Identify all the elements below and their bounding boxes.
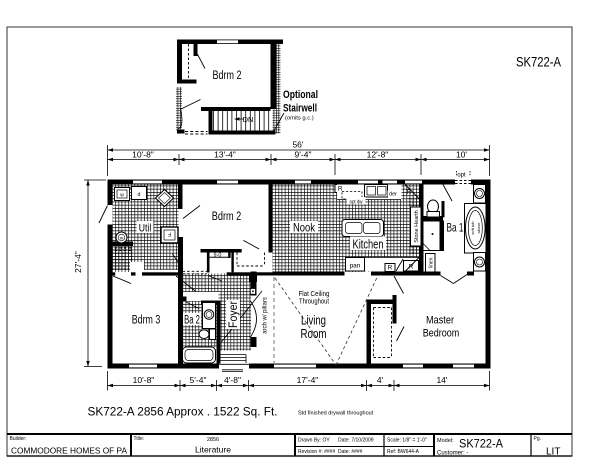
svg-text:Bdrm 2: Bdrm 2 [212,209,242,223]
svg-text:10'-8": 10'-8" [133,375,155,385]
svg-text:R: R [338,186,343,193]
svg-text:Literature: Literature [195,445,231,455]
svg-text:Ba 1: Ba 1 [447,221,464,235]
svg-text:Bdrm 3: Bdrm 3 [132,313,161,327]
svg-text:Nook: Nook [293,221,316,235]
svg-text:Model:: Model: [437,438,454,444]
svg-text:2856: 2856 [207,437,219,443]
svg-text:Stone Hearth: Stone Hearth [414,210,420,242]
svg-text:Revision #: ####: Revision #: #### [298,449,335,455]
svg-text:pan: pan [350,263,361,270]
svg-text:17'-4": 17'-4" [297,375,319,385]
svg-text:soft tub: soft tub [470,221,475,235]
svg-text:10': 10' [456,150,467,160]
svg-text:14': 14' [436,375,447,385]
svg-text:Pg.: Pg. [534,436,542,442]
svg-text:SK722-A: SK722-A [516,55,562,70]
svg-text:Kitchen: Kitchen [353,238,384,252]
svg-text:linen: linen [428,257,434,268]
svg-text:5'-4": 5'-4" [190,375,207,385]
svg-text:Bdrm 2: Bdrm 2 [213,68,242,82]
svg-text:opt: opt [457,173,466,179]
svg-text:Builder:: Builder: [10,436,27,442]
svg-text:SK722-A: SK722-A [459,437,503,451]
svg-text:LIT: LIT [546,447,560,458]
svg-text:56': 56' [292,140,303,150]
svg-text:Optional: Optional [283,89,318,101]
svg-text:Foyer: Foyer [226,301,240,328]
svg-text:Date: ####: Date: #### [338,449,363,455]
svg-text:d: d [138,192,141,198]
svg-text:w: w [120,193,124,199]
svg-text:Ref: BW644-A: Ref: BW644-A [387,449,420,455]
svg-text:13'-4": 13'-4" [214,150,236,160]
svg-text:SK722-A 2856 Approx . 1522 Sq: SK722-A 2856 Approx . 1522 Sq. Ft. [88,405,278,419]
svg-text:Room: Room [301,327,327,341]
svg-text:Ba 2: Ba 2 [184,315,200,327]
svg-text:Drawn By: OY: Drawn By: OY [298,438,330,444]
svg-text:27'-4": 27'-4" [73,251,83,273]
svg-text:9'-4": 9'-4" [295,150,312,160]
svg-text:10'-8": 10'-8" [132,150,154,160]
svg-text:(omits g.c.): (omits g.c.) [285,116,314,122]
svg-text:Customer: -: Customer: - [437,451,468,457]
svg-text:Std finished drywall throughou: Std finished drywall throughout [298,411,374,417]
svg-text:DN: DN [243,115,254,124]
svg-text:R: R [407,189,412,196]
svg-text:Title:: Title: [134,436,145,442]
svg-text:Master: Master [426,315,454,327]
svg-text:12'-8": 12'-8" [367,150,389,160]
svg-text:Throughout: Throughout [299,299,329,306]
svg-text:arch w/ pillars: arch w/ pillars [263,297,269,334]
svg-text:R: R [388,265,393,272]
svg-text:9-0: 9-0 [214,253,222,259]
svg-text:der: der [389,192,397,198]
svg-text:4'-8": 4'-8" [224,375,241,385]
svg-text:Util: Util [139,223,152,235]
svg-text:Scale: 1/8" = 1'-0": Scale: 1/8" = 1'-0" [387,438,427,444]
svg-text:Living: Living [301,314,326,328]
svg-text:COMMODORE HOMES OF PA: COMMODORE HOMES OF PA [11,446,127,456]
svg-text:Bedroom: Bedroom [423,328,460,340]
svg-text:Date: 7/10/2009: Date: 7/10/2009 [338,438,374,444]
svg-text:opt dw: opt dw [350,200,363,206]
svg-text:Flat Ceiling: Flat Ceiling [299,291,330,298]
svg-text:Stairwell: Stairwell [283,103,317,115]
svg-text:R: R [409,264,414,271]
svg-text:4': 4' [377,375,384,385]
svg-text:above: above [476,222,481,234]
